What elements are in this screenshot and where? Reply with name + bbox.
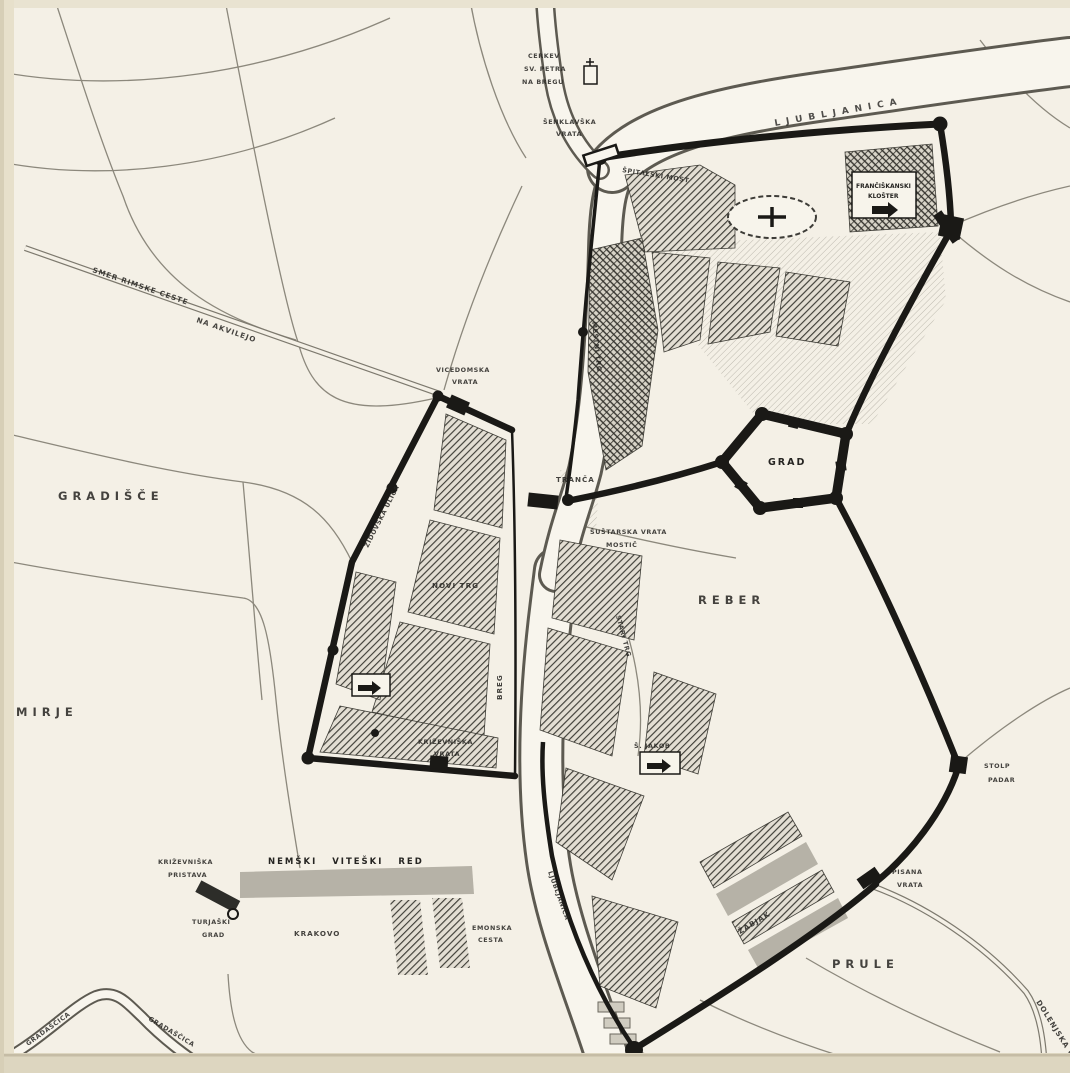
label-vicedom-1: VICEDOMSKA (436, 366, 490, 374)
label-krakovo: KRAKOVO (294, 929, 340, 938)
label-turjaski-2: GRAD (202, 931, 225, 939)
wall-tower-dot (933, 117, 948, 132)
chapel-icon (584, 66, 597, 84)
castle-tower (755, 407, 769, 421)
label-pisana-2: VRATA (897, 881, 923, 889)
wall-tower-dot (562, 494, 574, 506)
label-emonska-1: EMONSKA (472, 924, 512, 932)
label-breg: BREG (495, 674, 504, 700)
castle-tower (753, 501, 767, 515)
label-mirje: MIRJE (16, 705, 78, 719)
label-pristava-2: PRISTAVA (168, 871, 207, 879)
label-emonska-2: CESTA (478, 936, 503, 944)
label-turjaski-1: TURJAŠKI (192, 917, 231, 926)
castle-bastion (793, 498, 803, 508)
top-edge (0, 0, 1070, 8)
wall-tower-dot (328, 645, 339, 656)
label-sustar-2: MOSTIČ (606, 540, 637, 549)
label-sv-jakob: Š. JAKOB (634, 741, 670, 750)
label-pristava-1: KRIŽEVNIŠKA (158, 857, 213, 866)
castle-bastion (835, 460, 846, 471)
label-stolp-1: STOLP (984, 762, 1010, 770)
medieval-ljubljana-map: LJUBLJANICA LJUBLJANICA GRADAŠČICA GRADA… (0, 0, 1070, 1073)
label-gradisce: GRADIŠČE (58, 488, 164, 503)
label-senklav-1: ŠENKLAVŠKA (543, 117, 596, 126)
label-nemski-red: NEMŠKI VITEŠKI RED (268, 855, 424, 867)
left-edge-shadow (0, 0, 4, 1073)
label-krizevniska-2: VRATA (434, 750, 460, 758)
wall-tower-dot (371, 729, 379, 737)
label-krizevniska-1: KRIŽEVNIŠKA (418, 737, 473, 746)
castle-tower (829, 491, 843, 505)
label-grad: GRAD (768, 457, 806, 468)
label-franciscan-2: KLOŠTER (868, 193, 899, 200)
label-pisana-1: PISANA (892, 868, 923, 876)
label-reber: REBER (698, 593, 765, 607)
mestni-trg-block (776, 272, 850, 346)
label-prule: PRULE (832, 957, 899, 971)
stolp-padar-icon (949, 755, 968, 774)
castle-tower (839, 427, 853, 441)
castle-tower (715, 455, 729, 469)
bottom-scan-line (0, 1054, 1070, 1057)
label-franciscan-1: FRANČIŠKANSKI (856, 183, 911, 190)
wall-tower-dot (578, 327, 588, 337)
label-novi-trg: NOVI TRG (432, 581, 479, 590)
label-stolp-2: PADAR (988, 776, 1015, 784)
wall-tower-dot (302, 752, 315, 765)
label-chapel-3: NA BREGU (522, 78, 564, 86)
mestni-trg-block (708, 262, 780, 344)
label-senklav-2: VRATA (556, 130, 582, 138)
label-chapel-2: SV. PETRA (524, 65, 566, 73)
label-vicedom-2: VRATA (452, 378, 478, 386)
scanned-map-page: LJUBLJANICA LJUBLJANICA GRADAŠČICA GRADA… (0, 0, 1070, 1073)
wall-tower-dot (433, 391, 444, 402)
label-tranca: TRANČA (556, 475, 595, 484)
label-chapel-1: CERKEV (528, 52, 560, 60)
label-sustar-1: ŠUŠTARSKA VRATA (590, 527, 667, 536)
